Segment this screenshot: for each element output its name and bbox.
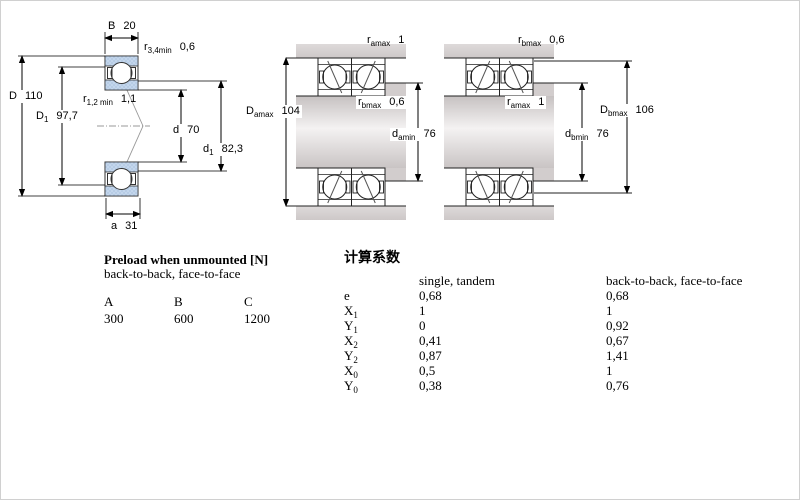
- factor-symbol: Y2: [344, 348, 419, 363]
- housing-bottom: [296, 206, 406, 220]
- factor-value-single: 0,38: [419, 378, 606, 393]
- dim-label-a: a31: [111, 220, 137, 233]
- factor-row: Y0 0,38 0,76: [344, 378, 791, 393]
- factor-symbol: Y0: [344, 378, 419, 393]
- dim-label-d: d70: [171, 124, 201, 137]
- dim-label-rbmax-right: rbmax0,6: [518, 34, 565, 47]
- factor-value-single: 0,5: [419, 363, 606, 378]
- factor-value-single: 1: [419, 303, 606, 318]
- preload-title: Preload when unmounted [N]: [104, 253, 354, 267]
- dim-label-r34min: r3,4min0,6: [144, 41, 195, 54]
- factors-title: 计算系数: [344, 251, 791, 267]
- dim-label-damin: damin76: [390, 128, 438, 141]
- preload-col-header: A: [104, 293, 174, 310]
- dim-label-r12min: r1,2 min1,1: [83, 93, 136, 106]
- dim-label-D: D110: [7, 90, 45, 103]
- housing-bottom: [444, 206, 554, 220]
- dim-label-ramax-right: ramax1: [505, 96, 546, 109]
- factor-row: X2 0,41 0,67: [344, 333, 791, 348]
- shaft-shoulder: [385, 168, 406, 181]
- factor-row: Y1 0 0,92: [344, 318, 791, 333]
- preload-subtitle: back-to-back, face-to-face: [104, 267, 354, 281]
- bearing-datasheet-page: B20 r3,4min0,6 D110 D197,7 r1,2 min1,1 d…: [0, 0, 800, 500]
- dim-label-D1: D197,7: [34, 110, 80, 123]
- shaft-shoulder: [385, 83, 406, 96]
- factor-value-paired: 0,76: [606, 378, 791, 393]
- factor-row: X0 0,5 1: [344, 363, 791, 378]
- preload-table: Preload when unmounted [N] back-to-back,…: [104, 253, 354, 327]
- factor-symbol: X0: [344, 363, 419, 378]
- factor-value-single: 0,87: [419, 348, 606, 363]
- dim-label-ramax-middle: ramax1: [367, 34, 404, 47]
- bearing-section-top: [105, 56, 138, 90]
- dim-label-Damax: Damax104: [244, 105, 302, 118]
- factor-value-paired: 0,92: [606, 318, 791, 333]
- shaft-shoulder: [533, 83, 554, 96]
- bearing-section-bottom: [105, 162, 138, 196]
- factor-value-paired: 1,41: [606, 348, 791, 363]
- factor-value-paired: 0,68: [606, 288, 791, 303]
- factor-value-paired: 0,67: [606, 333, 791, 348]
- dim-label-Dbmax: Dbmax106: [598, 104, 656, 117]
- dim-label-dbmin: dbmin76: [563, 128, 611, 141]
- preload-value: 300: [104, 310, 174, 327]
- dim-label-d1: d182,3: [201, 143, 245, 156]
- factor-value-single: 0,41: [419, 333, 606, 348]
- factor-value-paired: 1: [606, 303, 791, 318]
- factor-row: X1 1 1: [344, 303, 791, 318]
- factor-value-paired: 1: [606, 363, 791, 378]
- dim-label-B: B20: [108, 20, 136, 33]
- factor-row: Y2 0,87 1,41: [344, 348, 791, 363]
- factor-symbol: X1: [344, 303, 419, 318]
- factor-symbol: X2: [344, 333, 419, 348]
- factor-symbol: e: [344, 288, 419, 303]
- factor-value-single: 0: [419, 318, 606, 333]
- factors-header-row: single, tandem back-to-back, face-to-fac…: [344, 273, 791, 288]
- preload-col-header: C: [244, 293, 314, 310]
- preload-value: 1200: [244, 310, 314, 327]
- factor-symbol: Y1: [344, 318, 419, 333]
- dim-label-rbmax-middle: rbmax0,6: [356, 96, 407, 109]
- factor-row: e 0,68 0,68: [344, 288, 791, 303]
- calculation-factors-table: 计算系数 single, tandem back-to-back, face-t…: [344, 251, 791, 393]
- preload-value: 600: [174, 310, 244, 327]
- preload-col-header: B: [174, 293, 244, 310]
- factors-col1-header: single, tandem: [419, 273, 606, 288]
- factors-col2-header: back-to-back, face-to-face: [606, 273, 791, 288]
- shaft-shoulder: [533, 168, 554, 181]
- factor-value-single: 0,68: [419, 288, 606, 303]
